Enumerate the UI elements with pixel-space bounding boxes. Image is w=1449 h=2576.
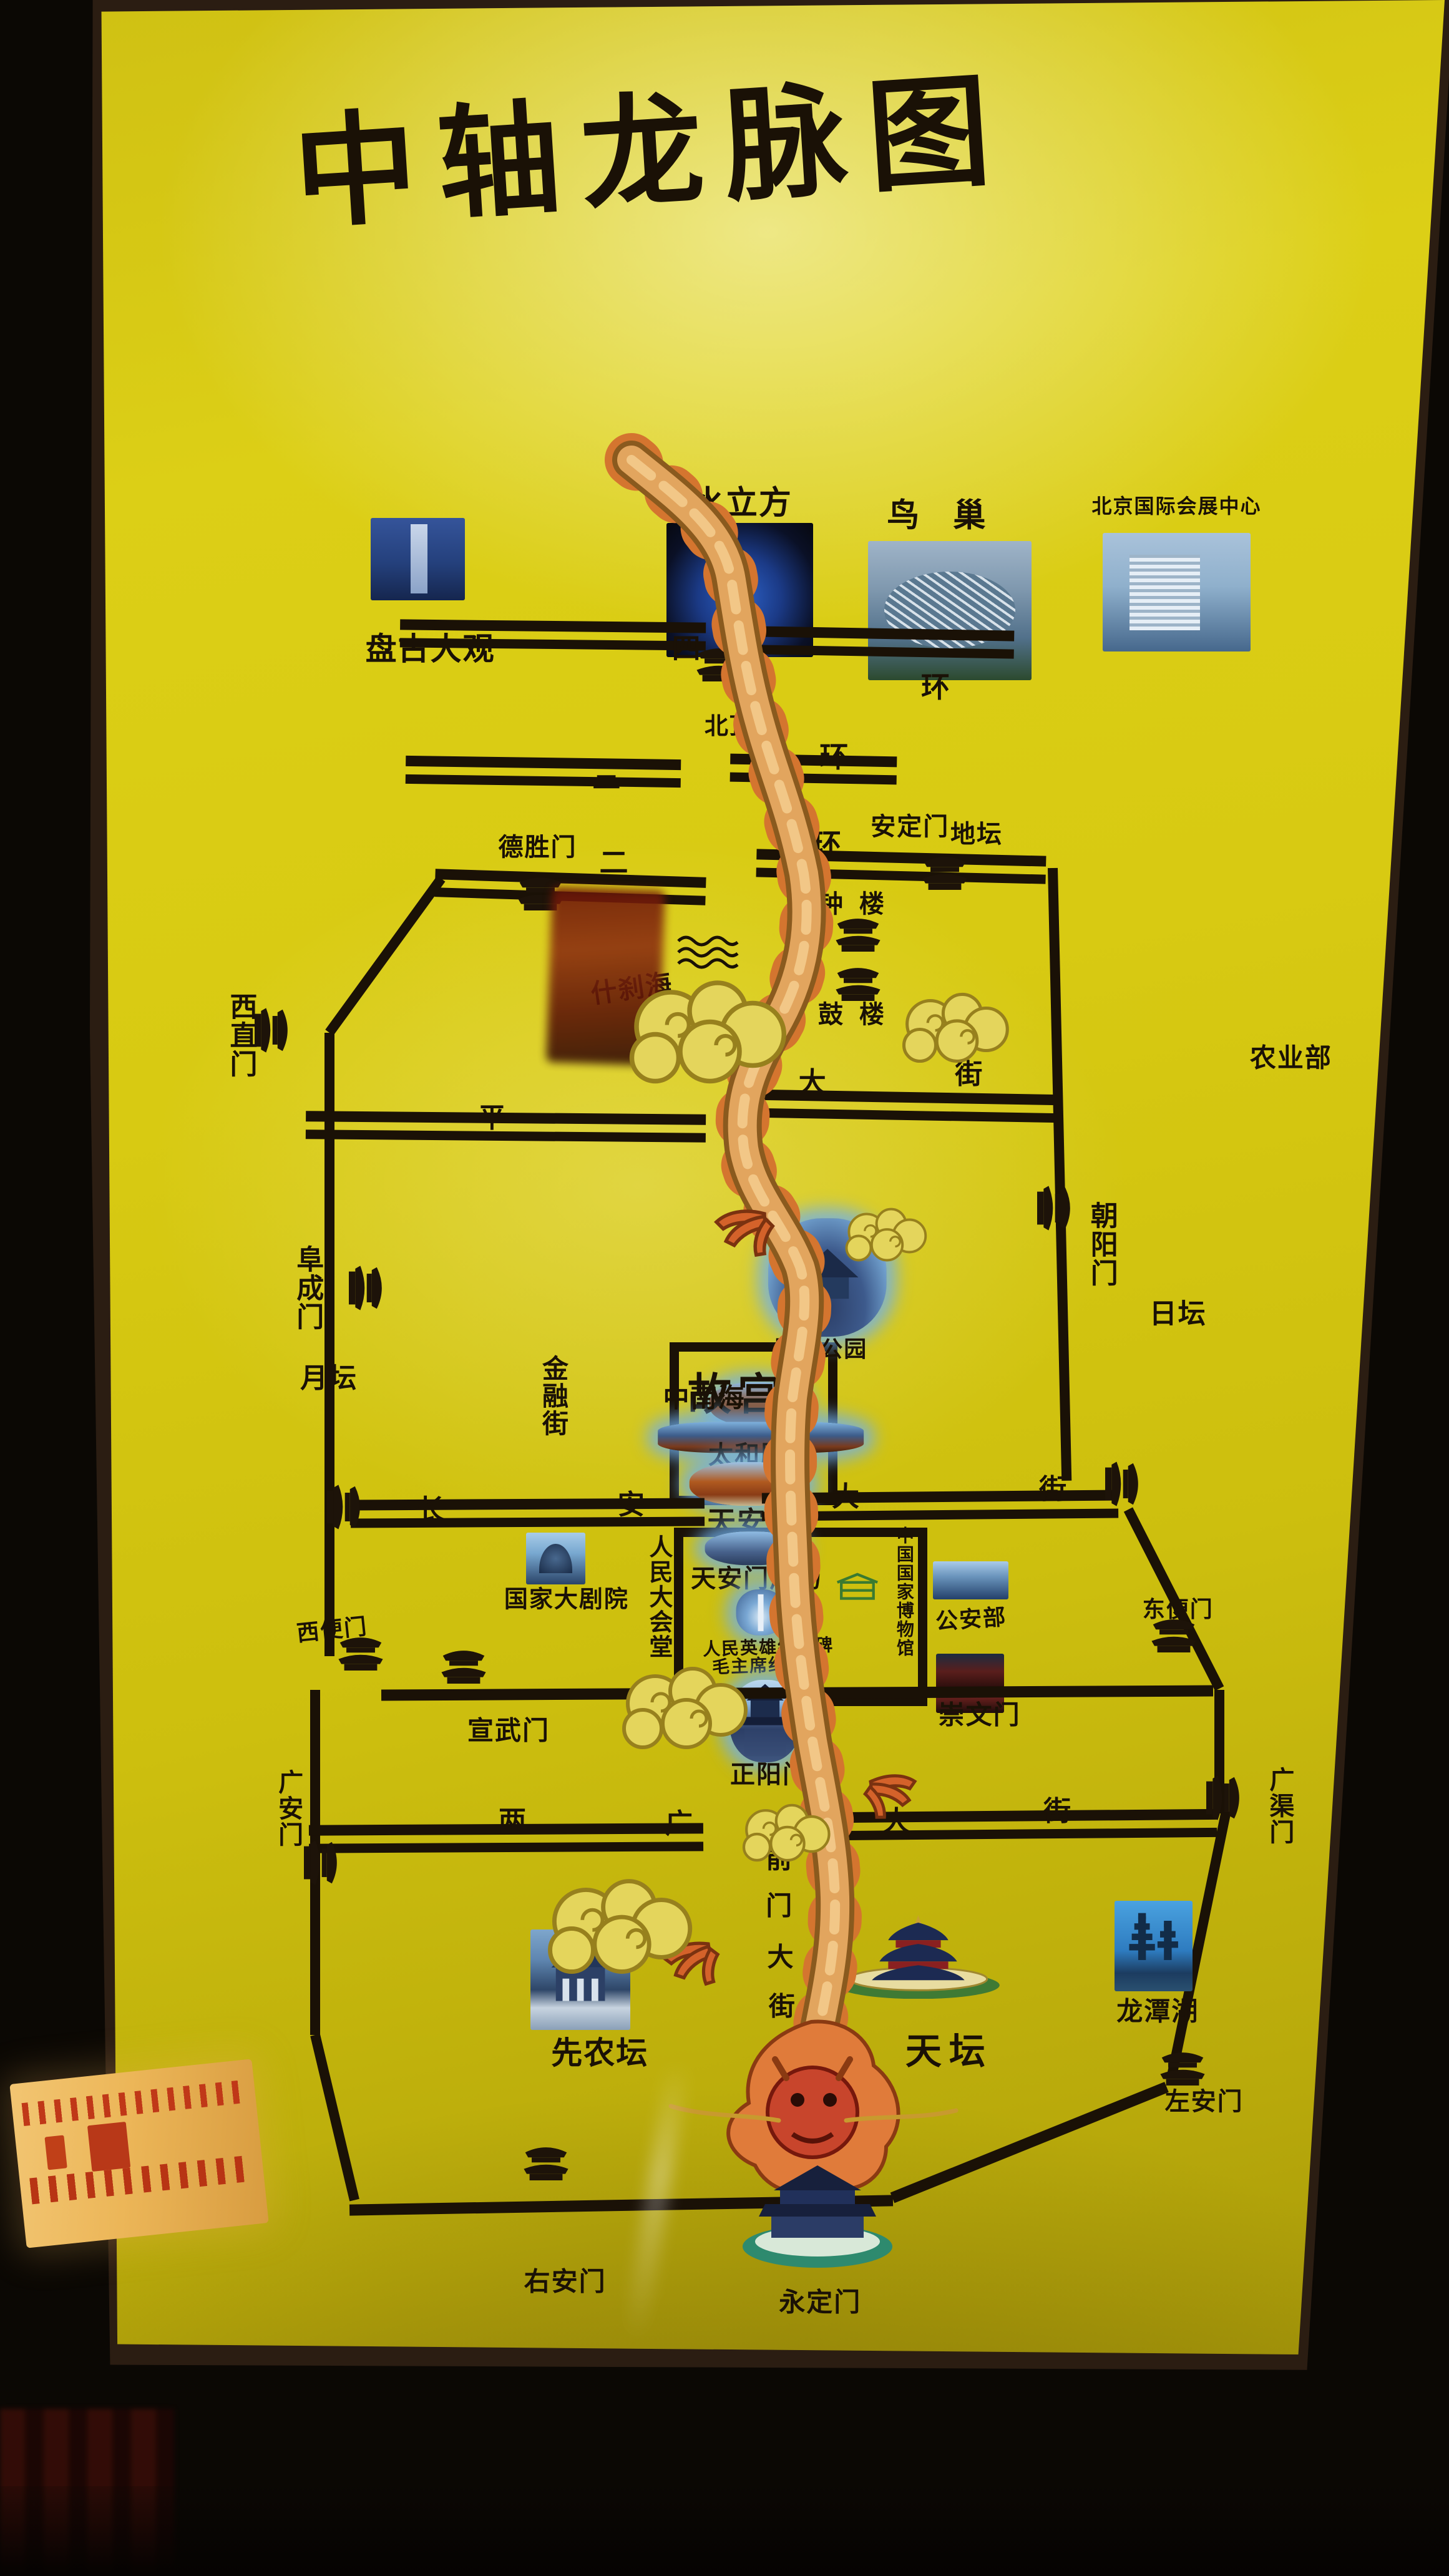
shelf-shadow bbox=[0, 2486, 1449, 2576]
jingshan-label: 景山公园 bbox=[773, 1331, 867, 1364]
jingshan-pavilion-image bbox=[768, 1219, 887, 1337]
yongdingmen-gate-illustration bbox=[743, 2165, 892, 2268]
museum-label: 中国国家博物馆 bbox=[892, 1526, 917, 1657]
qianmen-street-char-2: 门 bbox=[766, 1885, 793, 1923]
ncpa-photo bbox=[526, 1533, 585, 1584]
ring4-label-west: 四 bbox=[672, 626, 702, 667]
changan-label-3: 大 bbox=[832, 1474, 861, 1514]
museum-green-sketch bbox=[831, 1561, 884, 1613]
chaoyangmen-gate-icon bbox=[1037, 1184, 1076, 1232]
birds-nest-label: 鸟 巢 bbox=[887, 489, 997, 536]
gonganbu-label: 公安部 bbox=[934, 1599, 1007, 1636]
shichahai-waves-icon bbox=[677, 935, 739, 976]
pingan-label-3: 街 bbox=[955, 1051, 983, 1091]
loop-east-wall bbox=[1048, 868, 1071, 1481]
fuchengmen-gate-icon bbox=[349, 1264, 388, 1312]
obelisk-image bbox=[736, 1589, 786, 1636]
yuetan-label: 月坛 bbox=[300, 1355, 358, 1395]
southeast-boundary-diagonal bbox=[890, 2082, 1169, 2203]
xuanwumen-label: 宣武门 bbox=[467, 1709, 550, 1747]
xiannongtan-photo bbox=[530, 1930, 630, 2030]
ring2-label-west: 二 bbox=[600, 840, 630, 881]
outer-southwest-diagonal bbox=[310, 2034, 359, 2202]
obelisk-shaft bbox=[758, 1594, 763, 1631]
dongbianmen-gate-icon bbox=[1149, 1614, 1198, 1652]
figure-horse bbox=[44, 2135, 67, 2170]
ritan-label: 日坛 bbox=[1149, 1291, 1207, 1331]
tiantan-label: 天坛 bbox=[905, 2022, 993, 2074]
zuoanmen-gate-icon bbox=[1158, 2047, 1207, 2086]
ditan-label: 地坛 bbox=[950, 814, 1003, 850]
fuxingmen-gate-icon bbox=[327, 1483, 366, 1531]
liangguang-label-1: 两 bbox=[499, 1798, 527, 1838]
zhonglou-icon bbox=[834, 913, 882, 952]
pingan-label-2: 大 bbox=[799, 1060, 827, 1100]
liangguang-label-4: 街 bbox=[1043, 1788, 1072, 1828]
gulou-label: 鼓楼 bbox=[818, 994, 900, 1030]
changan-avenue-west bbox=[351, 1498, 705, 1528]
longtanhu-photo bbox=[1115, 1901, 1193, 1991]
jianguomen-gate-icon bbox=[1105, 1460, 1144, 1508]
zhengyangmen-label: 正阳门 bbox=[730, 1754, 809, 1790]
figure-row-1 bbox=[21, 2079, 246, 2125]
ring4-road-west bbox=[400, 619, 706, 650]
ring3-label-east: 环 bbox=[819, 734, 849, 776]
nongyebu-label: 农业部 bbox=[1250, 1037, 1332, 1075]
guanganmen-gate-icon bbox=[304, 1838, 343, 1887]
ncpa-label: 国家大剧院 bbox=[504, 1580, 629, 1614]
exhibition-center-photo bbox=[1103, 533, 1251, 651]
youanmen-label: 右安门 bbox=[524, 2261, 607, 2299]
beiding-temple-label: 北顶庙 bbox=[705, 706, 779, 741]
pangu-tower-shape bbox=[411, 524, 427, 593]
ncpa-dome-shape bbox=[539, 1544, 572, 1573]
water-cube-label: 水立方 bbox=[691, 476, 793, 523]
ring4-label-east: 环 bbox=[921, 665, 951, 706]
fuchengmen-label: 阜成门 bbox=[287, 1245, 327, 1331]
ring3-road-east bbox=[730, 753, 897, 784]
loop-northwest-diagonal bbox=[325, 876, 445, 1036]
exhibition-center-label: 北京国际会展中心 bbox=[1091, 490, 1261, 519]
changan-label-1: 长 bbox=[417, 1487, 446, 1527]
zhongnanhai-label: 中南海 bbox=[663, 1377, 745, 1415]
liangguang-avenue-east bbox=[762, 1809, 1217, 1841]
great-hall-label: 人民大会堂 bbox=[642, 1534, 676, 1659]
qiansanmen-street bbox=[381, 1685, 1213, 1700]
birds-nest-photo bbox=[868, 541, 1032, 680]
chaoyangmen-label: 朝阳门 bbox=[1081, 1201, 1121, 1287]
gonganbu-photo bbox=[933, 1561, 1008, 1600]
changan-label-4: 街 bbox=[1039, 1466, 1068, 1506]
ring2-road-east bbox=[756, 849, 1046, 884]
longtanhu-label: 龙潭湖 bbox=[1116, 1990, 1199, 2028]
page-title: 中轴龙脉图 bbox=[288, 31, 1016, 253]
deshengmen-label: 德胜门 bbox=[498, 827, 577, 863]
zuoanmen-label: 左安门 bbox=[1165, 2081, 1244, 2117]
guangqumen-label: 广渠门 bbox=[1261, 1767, 1297, 1845]
andingmen-gate-icon bbox=[920, 851, 969, 890]
pingan-label-1: 平 bbox=[478, 1095, 507, 1135]
qianmen-street-char-3: 大 bbox=[768, 1936, 795, 1974]
youanmen-gate-icon bbox=[522, 2142, 570, 2180]
guanganmen-label: 广安门 bbox=[270, 1769, 306, 1848]
liangguang-label-2: 广 bbox=[665, 1801, 694, 1841]
figure-chariot bbox=[87, 2122, 131, 2172]
ring2-label-east: 环 bbox=[812, 822, 842, 863]
andingmen-label: 安定门 bbox=[871, 806, 949, 842]
xibianmen-gate-icon bbox=[336, 1632, 385, 1671]
qianmen-street-char-1: 前 bbox=[766, 1838, 793, 1876]
glare-reflection bbox=[546, 887, 665, 1066]
qianmen-street-char-4: 街 bbox=[769, 1985, 796, 2023]
secondary-lightbox bbox=[9, 2059, 269, 2248]
ring3-label-west: 三 bbox=[592, 755, 622, 796]
liangguang-label-3: 大 bbox=[882, 1798, 911, 1838]
changan-label-2: 安 bbox=[617, 1482, 646, 1522]
exhibition-building-shape bbox=[1129, 555, 1201, 631]
xuanwumen-gate-icon bbox=[439, 1645, 488, 1684]
photo-of-lightbox-sign: 中轴龙脉图 盘古大观 水立方 鸟 巢 北京国际会展中心 北顶庙 四 环 三 环 … bbox=[0, 0, 1449, 2576]
chongwenmen-label: 崇文门 bbox=[939, 1694, 1021, 1732]
yongdingmen-label: 永定门 bbox=[779, 2281, 861, 2320]
pangu-plaza-photo bbox=[371, 518, 465, 600]
ring3-road-west bbox=[406, 756, 681, 788]
ring4-road-east bbox=[756, 627, 1015, 659]
south-boundary bbox=[349, 2195, 893, 2216]
mao-hall-label: 毛主席纪念堂 bbox=[711, 1650, 824, 1679]
jinrongjie-label: 金融街 bbox=[535, 1355, 573, 1437]
xizhimen-gate-icon bbox=[255, 1006, 293, 1055]
guangqumen-gate-icon bbox=[1206, 1773, 1245, 1822]
xiannongtan-label: 先农坛 bbox=[551, 2028, 648, 2073]
tiantan-illustration bbox=[831, 1911, 1006, 1999]
